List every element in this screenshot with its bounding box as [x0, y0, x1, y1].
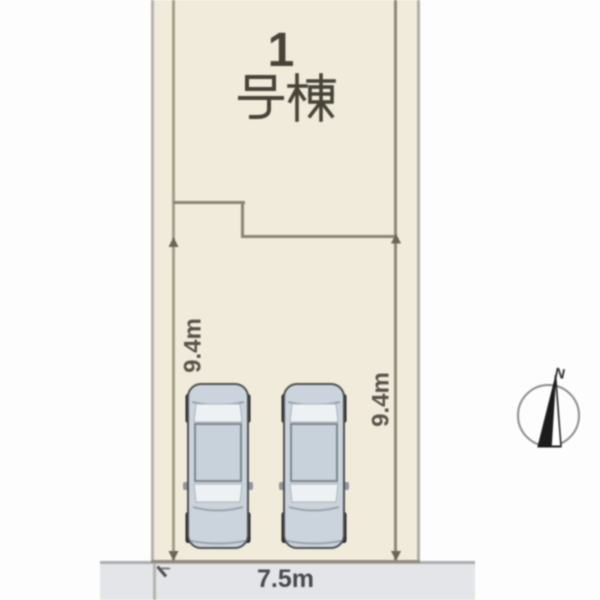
svg-text:N: N	[553, 364, 566, 382]
